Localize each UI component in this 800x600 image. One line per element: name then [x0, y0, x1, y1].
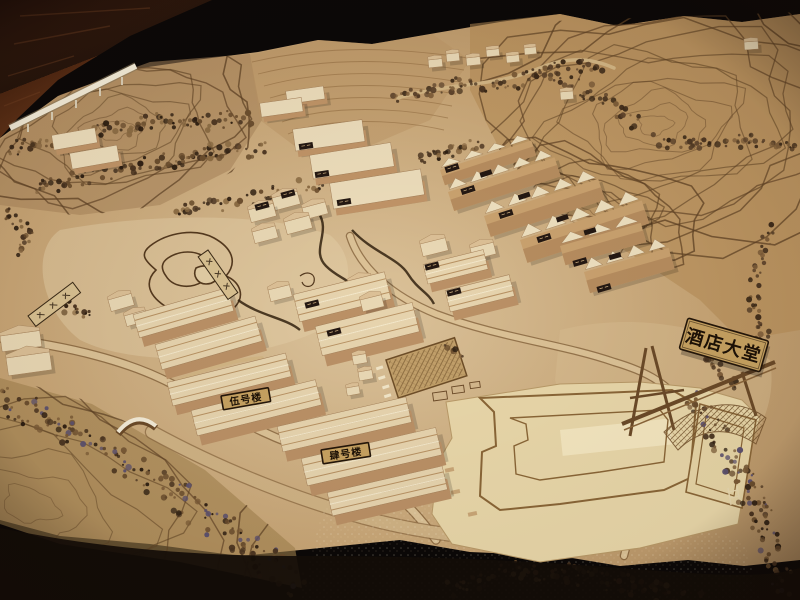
model-photo: 伍号楼 肆号楼 酒店大堂: [0, 0, 800, 600]
scale-model-scene: 伍号楼 肆号楼 酒店大堂: [0, 0, 800, 600]
vignette: [0, 0, 800, 600]
